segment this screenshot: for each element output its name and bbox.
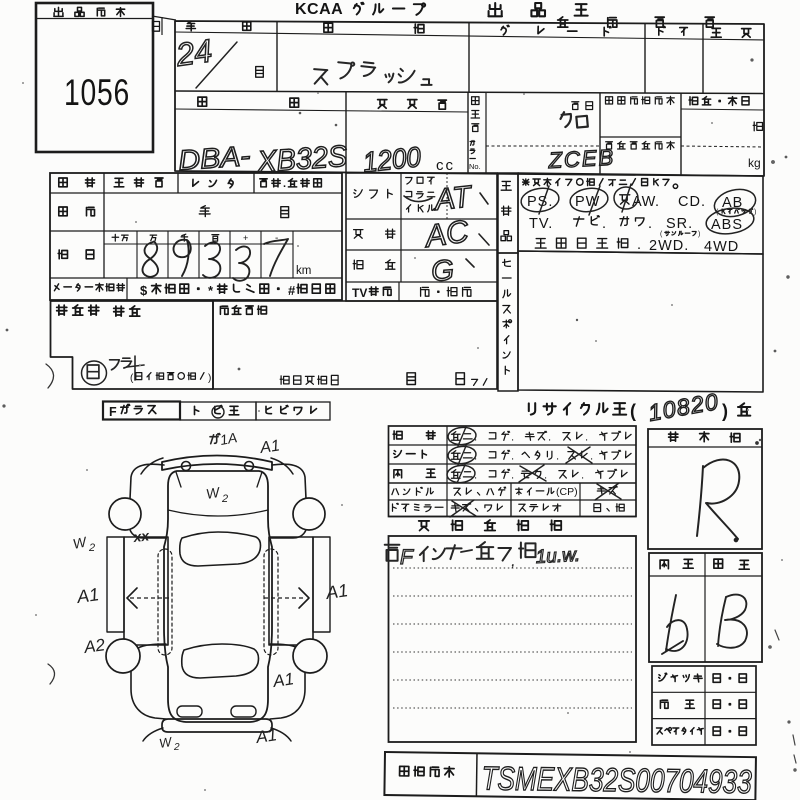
svg-text:.: . bbox=[602, 216, 606, 232]
svg-text:.: . bbox=[511, 469, 514, 481]
svg-text:A1: A1 bbox=[75, 584, 101, 607]
svg-text:F: F bbox=[400, 546, 414, 569]
svg-text:A1: A1 bbox=[258, 437, 281, 457]
svg-text:.: . bbox=[590, 450, 593, 462]
svg-text:): ) bbox=[698, 231, 700, 238]
svg-text:A1: A1 bbox=[254, 725, 278, 747]
svg-text:.: . bbox=[511, 431, 514, 443]
svg-text:2: 2 bbox=[88, 542, 95, 554]
svg-text:+: + bbox=[243, 233, 248, 243]
svg-text:ZCEB: ZCEB bbox=[547, 145, 616, 174]
svg-text:SR.: SR. bbox=[666, 216, 693, 232]
svg-text:AT: AT bbox=[431, 180, 475, 217]
svg-text:ABS: ABS bbox=[711, 217, 743, 233]
svg-text:): ) bbox=[754, 209, 756, 216]
svg-text:KCAA: KCAA bbox=[295, 1, 343, 18]
svg-text:DBA-: DBA- bbox=[177, 140, 251, 176]
svg-text:): ) bbox=[208, 373, 211, 384]
svg-text:1056: 1056 bbox=[64, 72, 130, 113]
svg-text:G: G bbox=[430, 254, 455, 287]
svg-text:A1: A1 bbox=[271, 669, 295, 691]
svg-text:No.: No. bbox=[469, 162, 481, 171]
svg-text:#: # bbox=[288, 283, 296, 298]
svg-text:,: , bbox=[511, 551, 516, 570]
svg-text:kg: kg bbox=[748, 156, 761, 170]
svg-text:.: . bbox=[548, 431, 551, 443]
svg-text:.: . bbox=[581, 469, 584, 481]
svg-text:km: km bbox=[296, 265, 311, 277]
svg-text:2WD.: 2WD. bbox=[649, 238, 689, 254]
svg-text:): ) bbox=[722, 401, 728, 421]
svg-text:1u.w.: 1u.w. bbox=[535, 545, 580, 568]
svg-text:A1: A1 bbox=[324, 580, 350, 603]
svg-text:TV: TV bbox=[352, 286, 367, 300]
svg-text:-: - bbox=[275, 233, 278, 244]
svg-text:TV.: TV. bbox=[529, 216, 553, 232]
svg-text:PS.: PS. bbox=[527, 194, 553, 210]
svg-text:.: . bbox=[585, 431, 588, 443]
svg-text:F: F bbox=[109, 405, 117, 419]
svg-text:cc: cc bbox=[436, 157, 455, 174]
svg-text:.: . bbox=[511, 450, 514, 462]
svg-text:A2: A2 bbox=[82, 635, 107, 657]
svg-text:.: . bbox=[637, 237, 641, 253]
svg-text:.: . bbox=[556, 450, 559, 462]
svg-text:(CP): (CP) bbox=[556, 486, 578, 498]
svg-text:$: $ bbox=[140, 283, 148, 298]
svg-text:AC: AC bbox=[421, 213, 471, 254]
svg-text:CD.: CD. bbox=[678, 194, 706, 210]
svg-text:2: 2 bbox=[173, 742, 180, 753]
svg-text:TSMEXB32S00704933: TSMEXB32S00704933 bbox=[481, 759, 752, 800]
svg-text:.: . bbox=[283, 178, 286, 190]
svg-text:AW.: AW. bbox=[632, 194, 660, 210]
svg-text:xx: xx bbox=[132, 527, 151, 545]
svg-text:.: . bbox=[648, 216, 652, 232]
svg-text:1A: 1A bbox=[219, 429, 239, 448]
svg-text:2: 2 bbox=[221, 493, 228, 505]
svg-text:24: 24 bbox=[173, 32, 214, 73]
svg-text:(: ( bbox=[630, 401, 636, 421]
